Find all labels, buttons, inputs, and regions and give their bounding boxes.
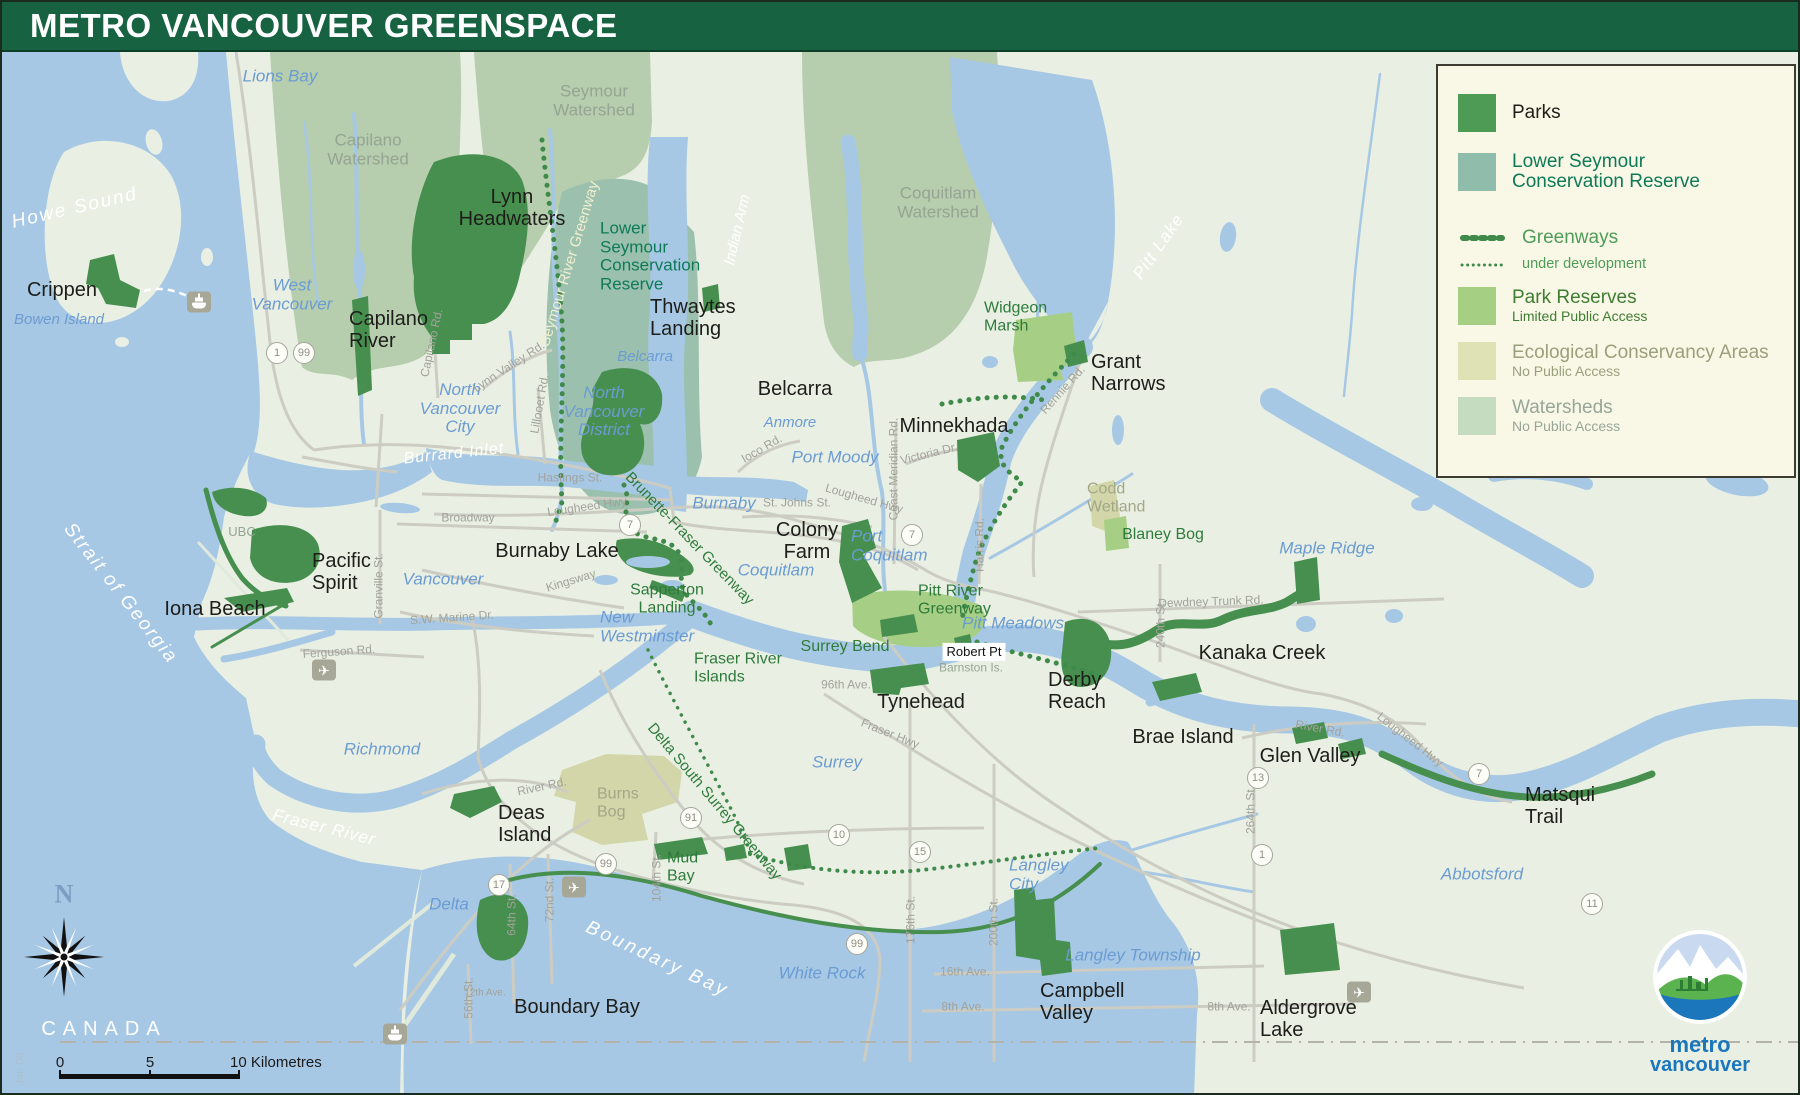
lscr-swatch: [1458, 153, 1496, 191]
burnaby-lake-water: [626, 556, 670, 568]
legend-label: Park Reserves: [1512, 288, 1647, 308]
logo-text-vancouver: vancouver: [1650, 1054, 1750, 1076]
legend: Parks Lower Seymour Conservation Reserve…: [1436, 64, 1796, 478]
compass-rose: [22, 915, 106, 999]
legend-item-parks: Parks: [1458, 94, 1561, 132]
map-page: METRO VANCOUVER GREENSPACE: [0, 0, 1800, 1095]
scale-zero: 0: [56, 1054, 64, 1071]
legend-label: Lower Seymour Conservation Reserve: [1512, 152, 1700, 192]
legend-item-ecological: Ecological Conservancy Areas No Public A…: [1458, 342, 1769, 380]
kanaka-pond: [1296, 616, 1316, 632]
metro-vancouver-logo: metro vancouver: [1640, 927, 1760, 1077]
scale-five: 5: [146, 1054, 154, 1071]
legend-label: Parks: [1512, 103, 1561, 123]
ecological-swatch: [1458, 342, 1496, 380]
legend-label: Greenways: [1522, 228, 1618, 248]
legend-sublabel: Limited Public Access: [1512, 308, 1647, 325]
legend-sublabel: No Public Access: [1512, 363, 1769, 380]
legend-item-park-reserves: Park Reserves Limited Public Access: [1458, 287, 1647, 325]
park-reserves-swatch: [1458, 287, 1496, 325]
greenway-swatch: [1458, 234, 1506, 242]
scale-bar-line: [60, 1074, 239, 1079]
legend-item-greenways: Greenways: [1458, 228, 1618, 248]
scale-ten: 10 Kilometres: [230, 1054, 322, 1071]
parks-swatch: [1458, 94, 1496, 132]
legend-item-under-development: under development: [1458, 256, 1646, 273]
legend-item-watersheds: Watersheds No Public Access: [1458, 397, 1620, 435]
under-development-swatch: [1458, 261, 1506, 269]
legend-label: under development: [1522, 256, 1646, 273]
legend-label: Ecological Conservancy Areas: [1512, 343, 1769, 363]
scale-bar: 0 5 10 Kilometres: [50, 1050, 380, 1090]
legend-item-lscr: Lower Seymour Conservation Reserve: [1458, 152, 1700, 192]
legend-sublabel: No Public Access: [1512, 418, 1620, 435]
legend-label: Watersheds: [1512, 398, 1620, 418]
title-bar: METRO VANCOUVER GREENSPACE: [2, 2, 1798, 52]
watersheds-swatch: [1458, 397, 1496, 435]
page-title: METRO VANCOUVER GREENSPACE: [2, 7, 618, 45]
